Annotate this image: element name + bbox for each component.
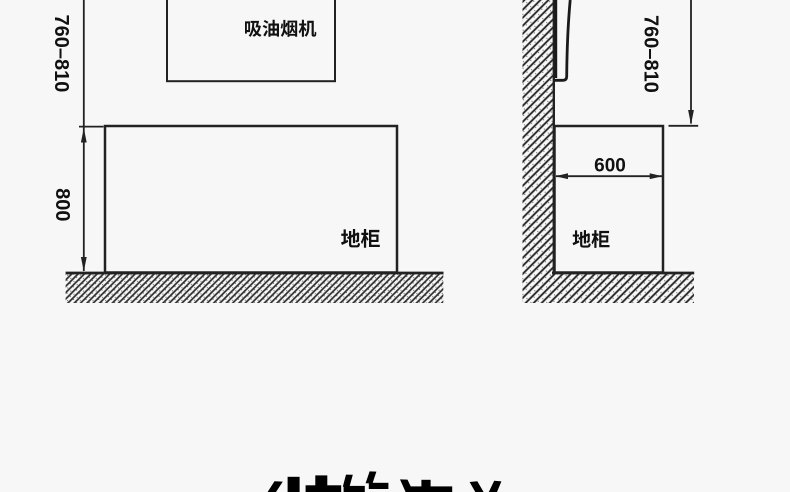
svg-text:800: 800 bbox=[51, 188, 73, 221]
svg-text:760–810: 760–810 bbox=[640, 15, 662, 93]
svg-text:600: 600 bbox=[594, 156, 626, 177]
svg-text:760–810: 760–810 bbox=[50, 14, 72, 92]
